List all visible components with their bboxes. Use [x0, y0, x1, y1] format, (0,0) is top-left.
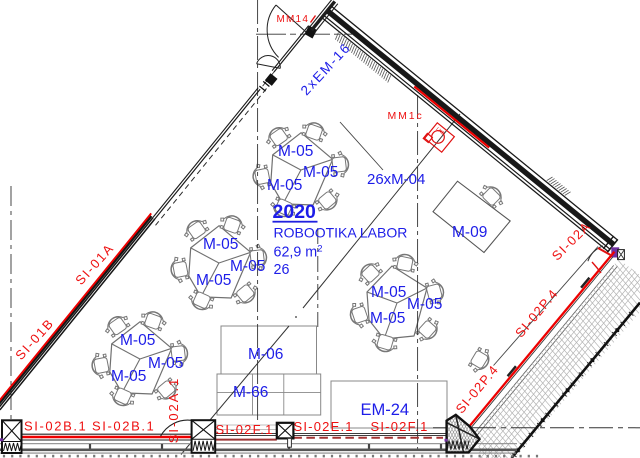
svg-text:M-09: M-09: [452, 224, 487, 241]
svg-text:62,9 m2: 62,9 m2: [274, 244, 323, 261]
svg-text:SI-02A: SI-02A: [549, 218, 594, 263]
svg-text:SI-02B.1: SI-02B.1: [24, 419, 87, 434]
svg-text:26: 26: [274, 262, 290, 278]
svg-text:2020: 2020: [273, 201, 317, 223]
svg-text:M-05: M-05: [203, 236, 238, 253]
svg-text:M-05: M-05: [303, 164, 338, 181]
svg-text:SI-02E.1: SI-02E.1: [294, 419, 354, 434]
svg-text:MM1c: MM1c: [388, 110, 424, 122]
svg-text:M-05: M-05: [370, 310, 405, 327]
svg-text:EM-24: EM-24: [361, 401, 410, 419]
svg-text:M-05: M-05: [120, 332, 155, 349]
svg-text:M-05: M-05: [407, 296, 442, 313]
svg-text:ROBOOTIKA LABOR: ROBOOTIKA LABOR: [274, 224, 408, 240]
svg-text:SI-02F.1: SI-02F.1: [216, 422, 274, 437]
svg-text:SI-02A.1: SI-02A.1: [166, 377, 181, 444]
svg-text:M-06: M-06: [248, 346, 283, 363]
svg-text:M-05: M-05: [230, 258, 265, 275]
svg-text:26xM-04: 26xM-04: [367, 171, 425, 188]
svg-text:M-05: M-05: [371, 284, 406, 301]
svg-text:M-05: M-05: [111, 368, 146, 385]
svg-text:SI-02F.1: SI-02F.1: [371, 419, 429, 434]
svg-text:M-05: M-05: [148, 355, 183, 372]
svg-text:2xEM-16: 2xEM-16: [298, 40, 354, 98]
svg-text:M-05: M-05: [278, 143, 313, 160]
svg-text:MM14: MM14: [277, 14, 310, 25]
svg-text:SI-02P.4: SI-02P.4: [512, 286, 561, 340]
svg-text:M-05: M-05: [267, 177, 302, 194]
svg-text:M-05: M-05: [196, 272, 231, 289]
svg-text:SI-02B.1: SI-02B.1: [92, 419, 155, 434]
svg-text:M-66: M-66: [233, 384, 268, 401]
